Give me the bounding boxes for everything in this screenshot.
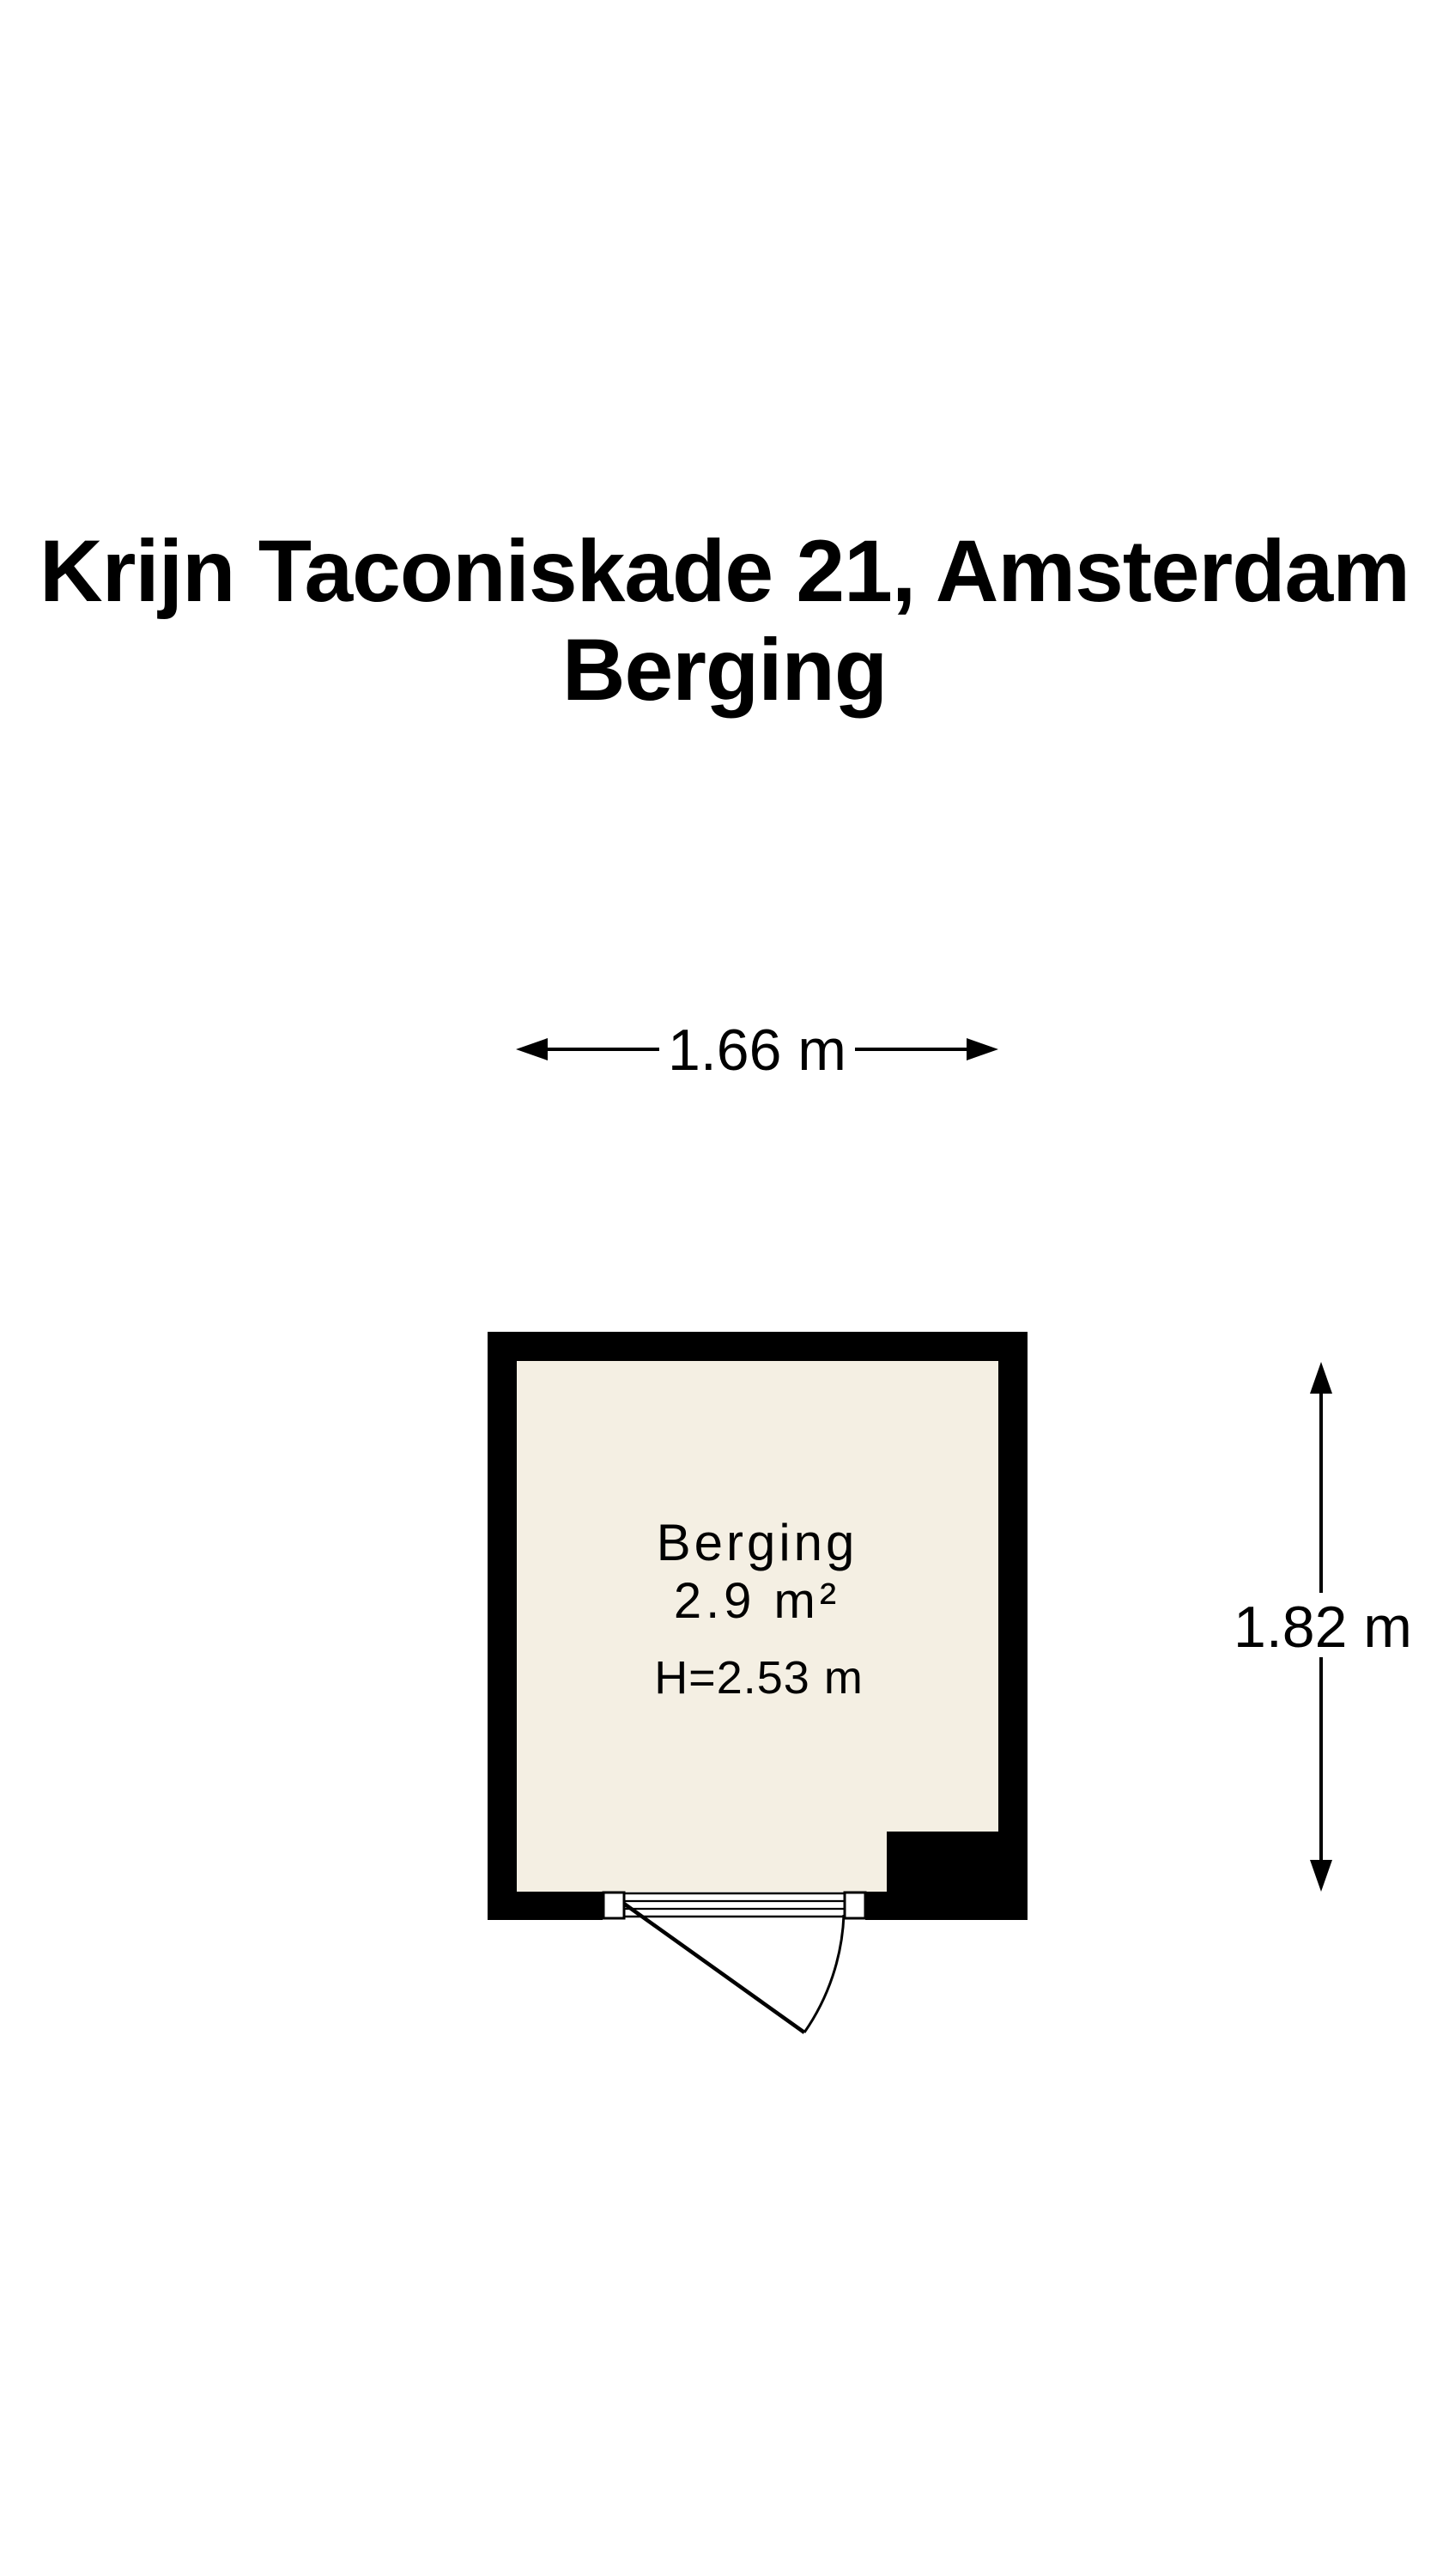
arrowhead-left-icon <box>516 1038 548 1060</box>
room-name: Berging <box>657 1514 858 1571</box>
dimension-width-label: 1.66 m <box>668 1018 846 1083</box>
room-label: Berging 2.9 m² H=2.53 m <box>654 1514 864 1704</box>
arrowhead-down-icon <box>1310 1860 1332 1892</box>
page-title: Krijn Taconiskade 21, Amsterdam Berging <box>0 522 1449 720</box>
arrowhead-up-icon <box>1310 1362 1332 1394</box>
dimension-width: 1.66 m <box>516 1018 998 1083</box>
page-title-line2: Berging <box>0 621 1449 720</box>
dimension-height: 1.82 m <box>1234 1362 1412 1892</box>
floorplan-page: Krijn Taconiskade 21, Amsterdam Berging … <box>0 0 1449 2576</box>
floorplan-drawing: 1.66 m 1.82 m Berging 2.9 m² H=2.53 m <box>464 987 1449 2104</box>
page-title-line1: Krijn Taconiskade 21, Amsterdam <box>0 522 1449 621</box>
room-ceiling-height: H=2.53 m <box>654 1652 864 1704</box>
door-jamb-right <box>845 1893 865 1918</box>
wall-corner-block <box>887 1832 998 1892</box>
door-leaf <box>624 1904 804 2032</box>
arrowhead-right-icon <box>967 1038 998 1060</box>
dimension-height-label: 1.82 m <box>1234 1595 1412 1660</box>
door-threshold <box>624 1893 845 1917</box>
room-area: 2.9 m² <box>674 1573 840 1629</box>
door-jamb-left <box>603 1893 624 1918</box>
door-swing-arc <box>804 1915 844 2032</box>
